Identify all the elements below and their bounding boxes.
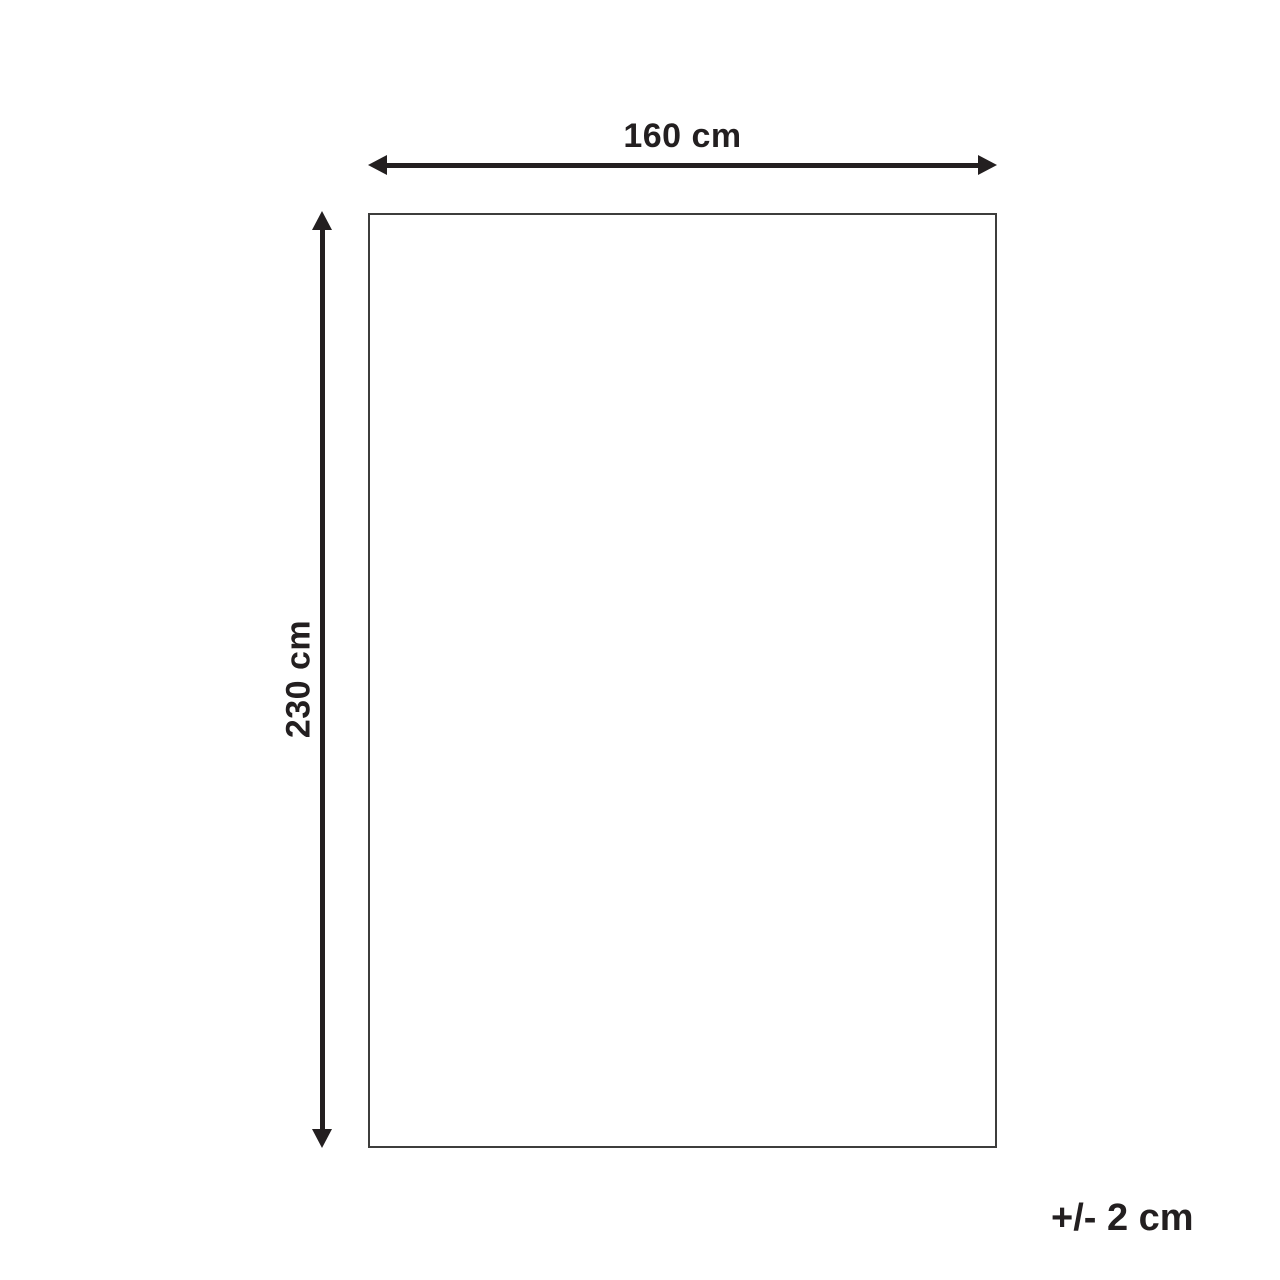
- arrowhead-left-icon: [368, 155, 387, 175]
- height-dimension-label: 230 cm: [280, 620, 319, 738]
- arrowhead-right-icon: [978, 155, 997, 175]
- width-dimension-arrow: [368, 155, 997, 175]
- arrowhead-up-icon: [312, 211, 332, 230]
- arrowhead-down-icon: [312, 1129, 332, 1148]
- width-arrow-shaft: [387, 163, 978, 168]
- tolerance-label: +/- 2 cm: [1051, 1197, 1194, 1240]
- width-dimension-label: 160 cm: [368, 117, 997, 156]
- product-outline-rectangle: [368, 213, 997, 1148]
- height-arrow-shaft: [320, 230, 325, 1129]
- dimension-diagram: 160 cm 230 cm +/- 2 cm: [0, 0, 1280, 1280]
